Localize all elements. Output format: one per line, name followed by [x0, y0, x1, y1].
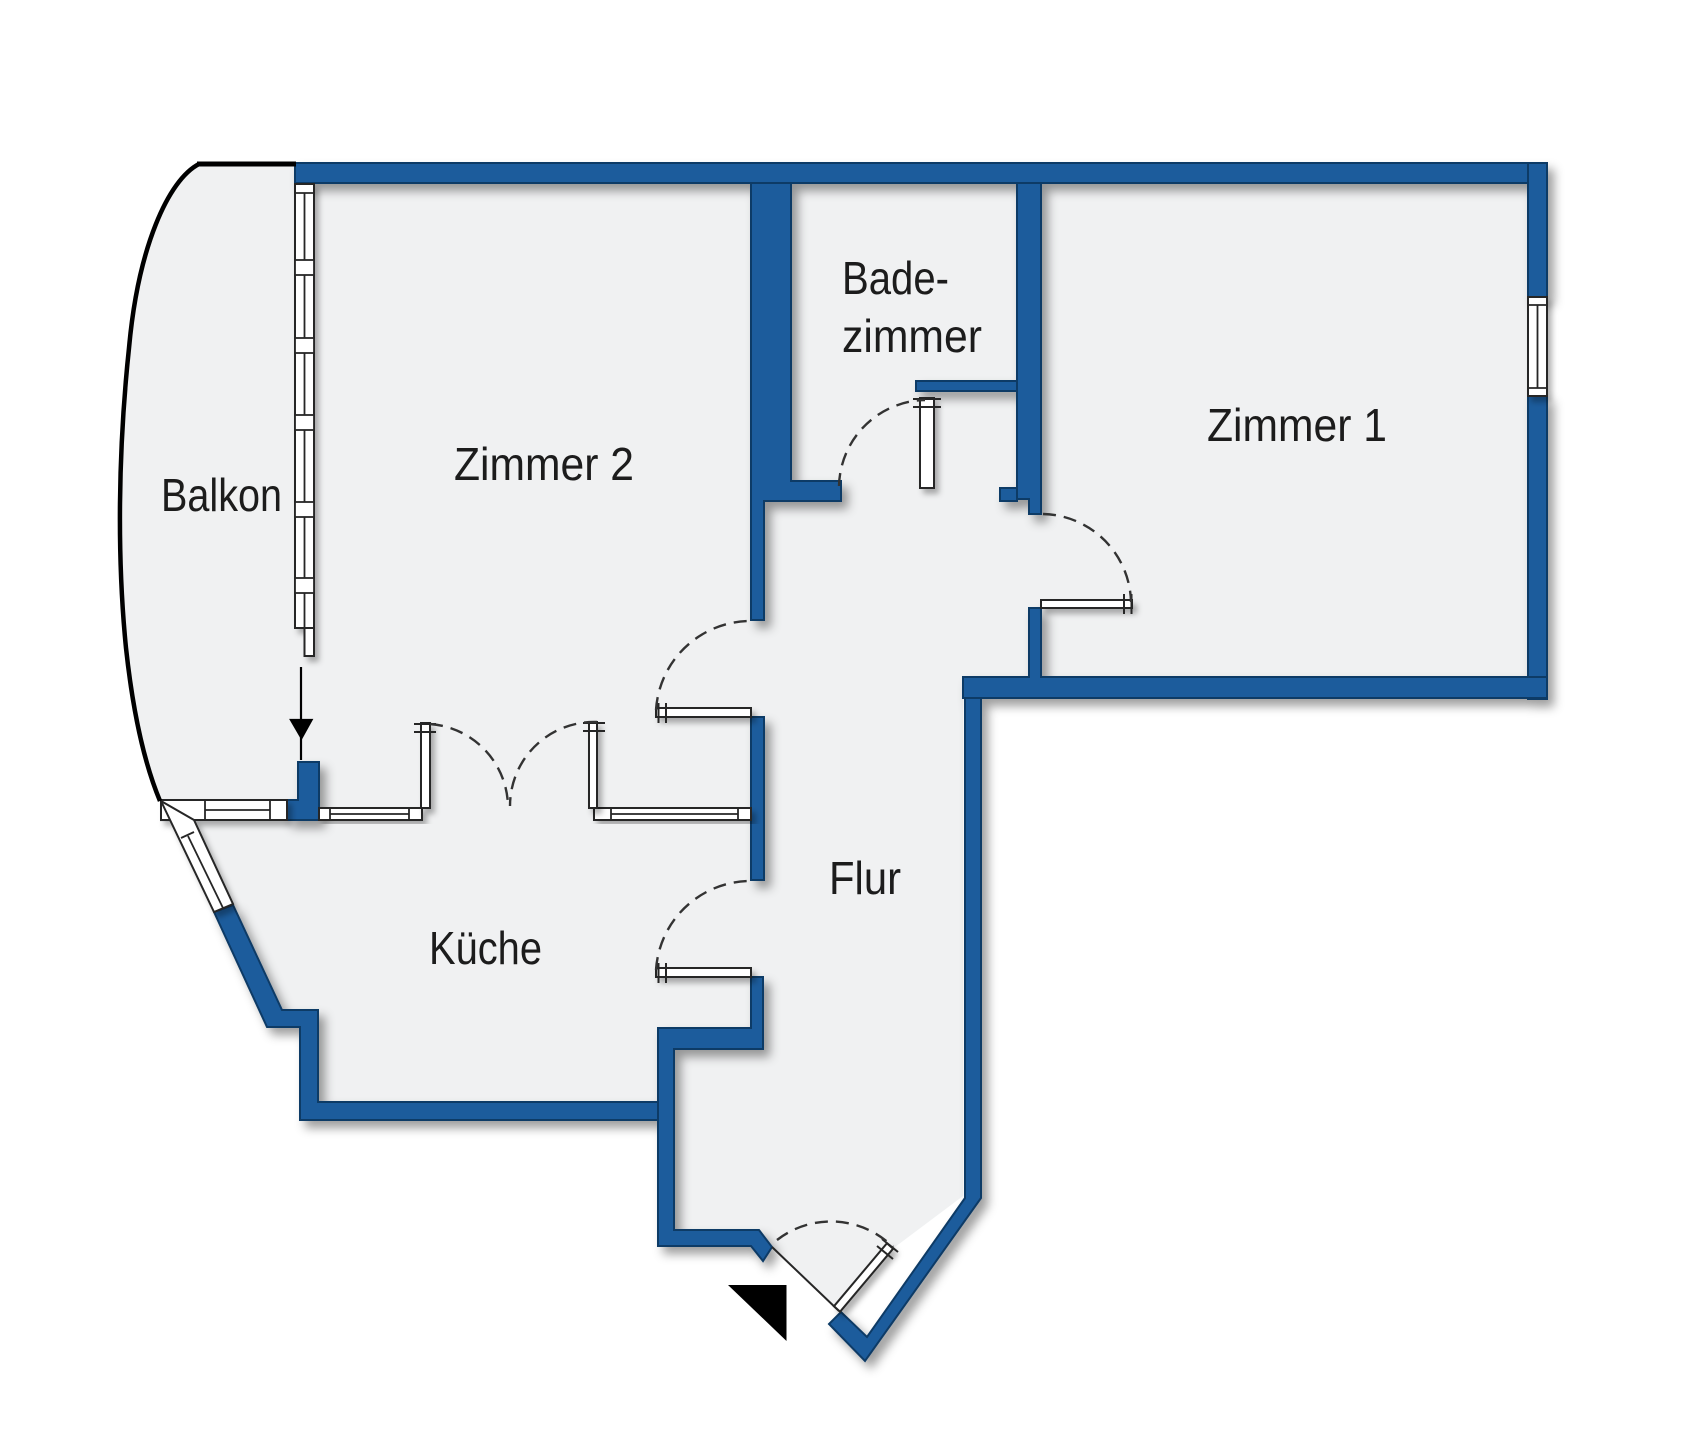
- svg-text:Bade-: Bade-: [842, 252, 949, 304]
- svg-text:Zimmer 2: Zimmer 2: [454, 438, 634, 490]
- svg-text:Zimmer 1: Zimmer 1: [1207, 399, 1387, 451]
- svg-text:Flur: Flur: [829, 852, 901, 904]
- svg-text:zimmer: zimmer: [842, 310, 982, 362]
- svg-text:Balkon: Balkon: [161, 469, 282, 521]
- svg-text:Küche: Küche: [429, 922, 542, 974]
